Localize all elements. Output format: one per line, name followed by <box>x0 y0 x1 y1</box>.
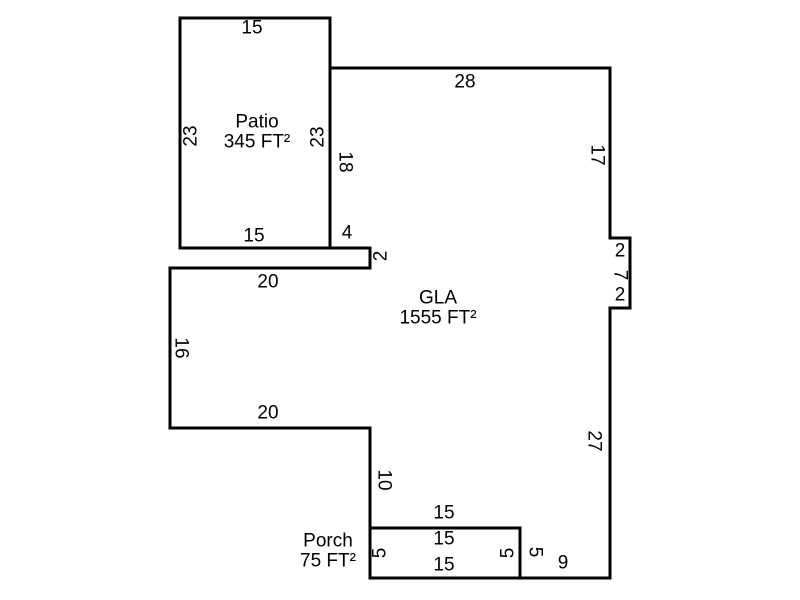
room-outline-patio <box>180 18 330 248</box>
room-outline-porch <box>370 528 520 578</box>
floor-plan-sketch: Patio345 FT²GLA1555 FT²Porch75 FT²152323… <box>0 0 800 600</box>
room-outline-gla <box>170 68 630 578</box>
floor-plan-outlines <box>0 0 800 600</box>
